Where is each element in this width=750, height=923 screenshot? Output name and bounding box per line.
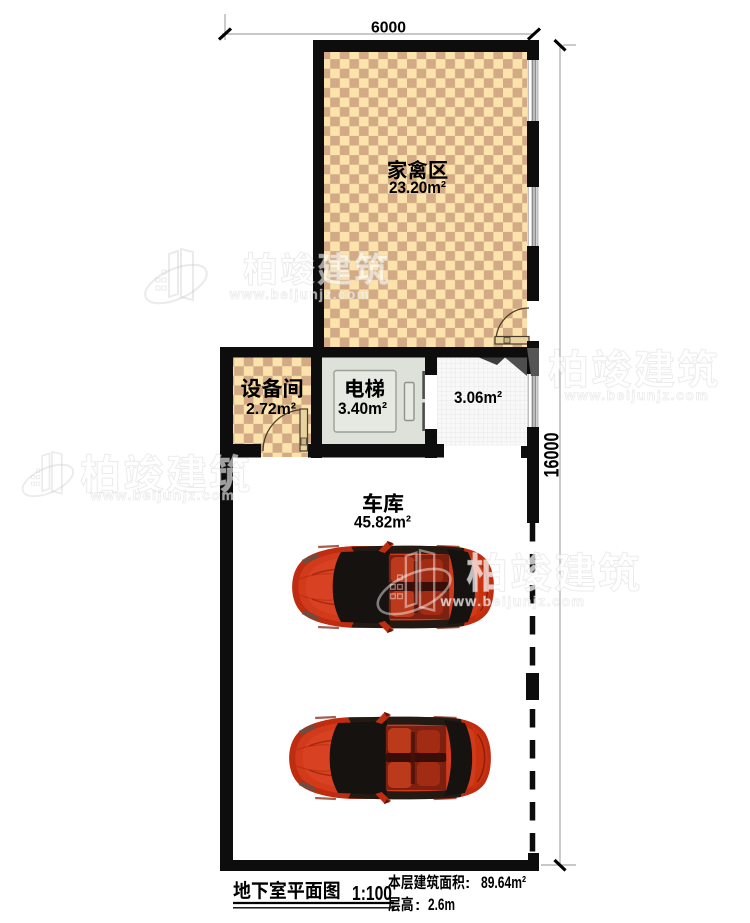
svg-text::: : <box>465 875 470 892</box>
svg-text:89.64m²: 89.64m² <box>481 873 526 892</box>
svg-text:www.beijunjz.com: www.beijunjz.com <box>440 593 586 609</box>
svg-text:1:100: 1:100 <box>352 883 392 905</box>
svg-text::: : <box>415 897 420 914</box>
svg-text:www.beijunjz.com: www.beijunjz.com <box>229 287 371 302</box>
svg-text:www.beijunjz.com: www.beijunjz.com <box>90 487 236 503</box>
svg-text:6000: 6000 <box>371 20 406 37</box>
svg-text:3.06m²: 3.06m² <box>454 389 502 407</box>
svg-text:23.20m²: 23.20m² <box>389 179 446 197</box>
svg-text:45.82m²: 45.82m² <box>354 514 411 532</box>
svg-text:2.6m: 2.6m <box>428 895 455 914</box>
svg-text:2.72m²: 2.72m² <box>246 401 296 418</box>
svg-text:www.beijunjz.com: www.beijunjz.com <box>564 387 710 403</box>
svg-text:16000: 16000 <box>541 433 564 478</box>
svg-text:3.40m²: 3.40m² <box>338 400 387 418</box>
